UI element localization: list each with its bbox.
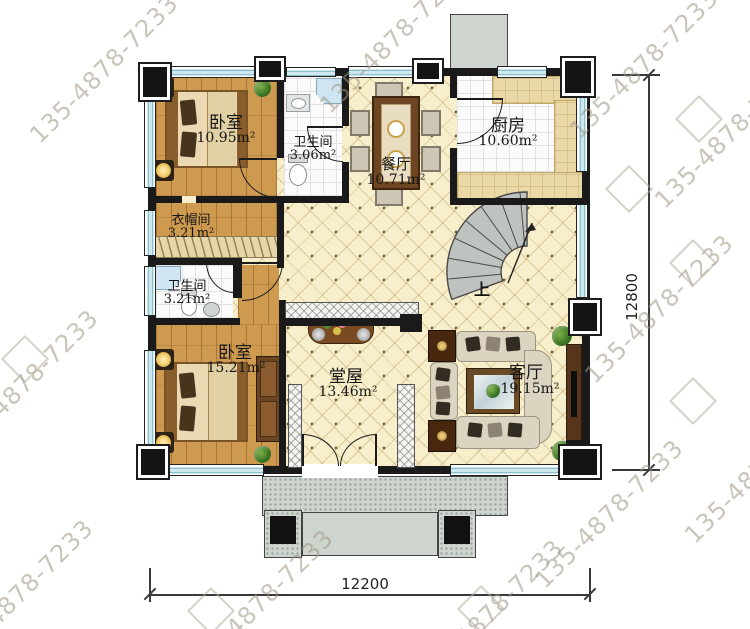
dining-chair [350,146,370,172]
watermark-diamond [1,335,49,383]
wall-bedroom1-right [277,70,284,158]
wall-bath1-right [342,70,349,126]
wall-kitchen-bottom [450,198,590,205]
watermark-diamond [669,377,717,425]
room-area-bath1: 3.06m² [286,148,340,163]
room-label-dining: 餐厅 [370,153,422,174]
watermark-diamond [457,585,505,629]
window [144,210,156,256]
chimney [450,14,508,72]
tv-screen [571,371,577,417]
dining-chair [421,110,441,136]
room-area-bedroom2: 15.21m² [200,360,272,376]
window [450,464,572,476]
wall-node [400,314,422,332]
dimension-guide [589,568,591,602]
watermark-text: 135-4878-7233 [0,514,99,629]
window [497,66,547,78]
dimension-line-right [648,75,650,470]
porch-column [444,516,470,544]
watermark-text: 135-4878-7233 [649,54,750,214]
corner-pillar [560,56,596,98]
side-table [428,330,456,362]
room-area-bath2: 3.21m² [160,292,214,307]
room-label-living: 客厅 [496,358,556,383]
wall-bath1-bottom [284,196,349,203]
room-area-dining: 10.71m² [360,172,432,188]
toilet-bowl [289,164,307,186]
room-area-living: 19.15m² [492,381,568,397]
window [576,94,588,172]
corner-pillar [138,62,172,102]
porch-column-base [438,510,476,558]
watermark-diamond [669,239,717,287]
hall-pilaster-left [288,384,302,468]
corner-pillar [136,444,170,480]
room-area-bedroom1: 10.95m² [190,130,262,146]
corner-pillar [412,58,444,84]
front-door-threshold [302,464,378,478]
corner-pillar [558,444,602,480]
corner-pillar [254,56,286,82]
room-area-cloakroom: 3.21m² [164,226,218,241]
window [165,66,263,78]
window [144,266,156,316]
corner-pillar [568,298,602,336]
window [144,350,156,452]
window [144,96,156,188]
dining-chair [350,110,370,136]
console-table [308,324,374,344]
dimension-guide [612,74,660,76]
wall-cloakroom-right [277,196,284,268]
floor-plan-canvas: 上 [0,0,750,629]
room-area-kitchen: 10.60m² [472,133,544,149]
dining-chair [375,188,403,206]
watermark-text: 135-4878-7233 [579,229,739,389]
tv-cabinet [566,344,582,442]
sink [286,94,310,112]
dimension-height: 12800 [623,265,641,329]
dimension-guide [612,469,660,471]
nightstand-lamp [153,160,174,181]
bed-headboard [167,92,178,166]
hall-pilaster-right [397,384,415,468]
porch-column [270,516,296,544]
porch-column-base [264,510,302,558]
nightstand-lamp [153,349,174,370]
side-table [428,420,456,452]
window [576,204,588,298]
wall-kitchen-left [450,70,457,98]
watermark-diamond [605,165,653,213]
watermark-text: 135-4878-7233 [679,389,750,549]
room-area-hall: 13.46m² [310,384,386,400]
watermark-diamond [675,95,723,143]
dining-chair [421,146,441,172]
hall-half-wall [283,318,405,326]
window [166,464,264,476]
wall-entry-stub [233,258,242,298]
dimension-width: 12200 [333,575,397,593]
wall-bedroom1-cloak-divider [148,196,182,203]
wall-kitchen-left [450,148,457,205]
porch-steps [302,512,438,556]
stairs-up-label: 上 [468,276,496,300]
window [286,67,336,77]
bed-headboard [166,364,177,440]
wall-bath2-bottom [148,318,240,325]
dimension-guide [149,568,151,602]
watermark-text: 135-4878-7233 [0,304,104,464]
dimension-line-bottom [150,594,590,596]
